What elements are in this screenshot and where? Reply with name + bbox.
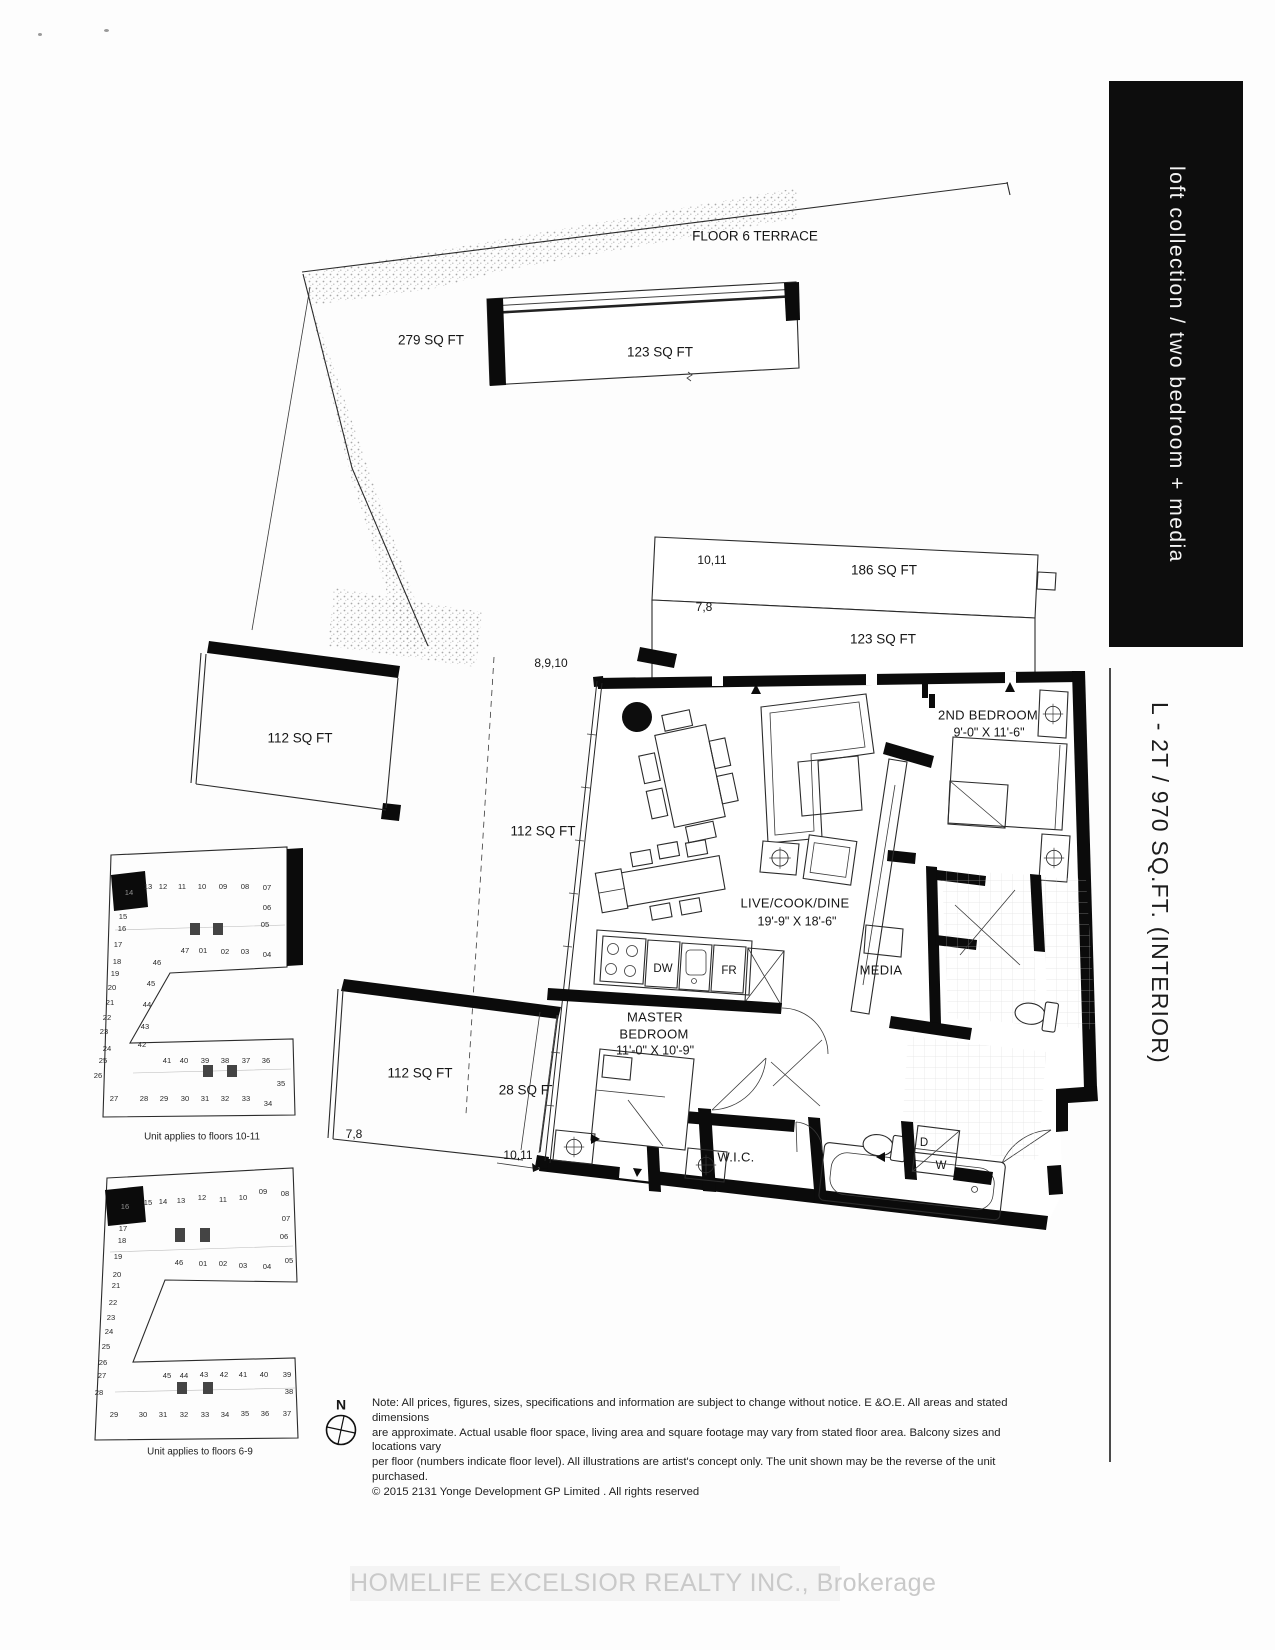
disclaimer-line3: per floor (numbers indicate floor level)… bbox=[372, 1455, 1044, 1485]
column bbox=[622, 702, 652, 732]
keyplan-unit-27: 27 bbox=[98, 1371, 106, 1380]
bed2 bbox=[948, 737, 1067, 830]
label-north: N bbox=[336, 1397, 346, 1413]
keyplan-unit-13: 13 bbox=[177, 1196, 185, 1205]
keyplan-unit-32: 32 bbox=[180, 1410, 188, 1419]
keyplan-unit-22: 22 bbox=[103, 1013, 111, 1022]
keyplan-unit-22: 22 bbox=[109, 1298, 117, 1307]
label-live-cook-dine: LIVE/COOK/DINE bbox=[741, 895, 850, 910]
keyplan-unit-05: 05 bbox=[261, 920, 269, 929]
keyplan-unit-29: 29 bbox=[110, 1410, 118, 1419]
keyplan-unit-43: 43 bbox=[200, 1370, 208, 1379]
keyplan-unit-16: 16 bbox=[121, 1202, 129, 1211]
keyplan-upper-units: 1413121110090807060547010203044645444342… bbox=[94, 882, 285, 1108]
keyplan-unit-02: 02 bbox=[221, 947, 229, 956]
keyplan-unit-04: 04 bbox=[263, 950, 271, 959]
disclaimer-line4: © 2015 2131 Yonge Development GP Limited… bbox=[372, 1485, 1044, 1500]
keyplan-unit-18: 18 bbox=[118, 1236, 126, 1245]
keyplan-unit-28: 28 bbox=[140, 1094, 148, 1103]
keyplan-unit-19: 19 bbox=[111, 969, 119, 978]
label-balcony-123-top: 123 SQ FT bbox=[627, 345, 693, 360]
label-dishwasher: DW bbox=[653, 963, 672, 975]
keyplan-unit-01: 01 bbox=[199, 946, 207, 955]
keyplan-unit-24: 24 bbox=[105, 1327, 113, 1336]
keyplan-unit-45: 45 bbox=[147, 979, 155, 988]
keyplan-unit-07: 07 bbox=[263, 883, 271, 892]
keyplan-unit-46: 46 bbox=[175, 1258, 183, 1267]
keyplan-unit-25: 25 bbox=[99, 1056, 107, 1065]
label-balcony-123: 123 SQ FT bbox=[850, 632, 916, 647]
keyplan-unit-15: 15 bbox=[144, 1198, 152, 1207]
keyplan-unit-41: 41 bbox=[163, 1056, 171, 1065]
keyplan-unit-31: 31 bbox=[159, 1410, 167, 1419]
keyplan-unit-38: 38 bbox=[285, 1387, 293, 1396]
keyplan-unit-36: 36 bbox=[261, 1409, 269, 1418]
keyplan-unit-39: 39 bbox=[283, 1370, 291, 1379]
keyplan-unit-40: 40 bbox=[260, 1370, 268, 1379]
keyplan-unit-30: 30 bbox=[181, 1094, 189, 1103]
keyplan-unit-08: 08 bbox=[241, 882, 249, 891]
keyplan-unit-14: 14 bbox=[159, 1197, 167, 1206]
keyplan-unit-21: 21 bbox=[106, 998, 114, 1007]
keyplan-floors-6-9: 1615141312111009080706054601020304171819… bbox=[95, 1168, 298, 1458]
keyplan-unit-44: 44 bbox=[180, 1371, 188, 1380]
keyplan-unit-37: 37 bbox=[283, 1409, 291, 1418]
keyplan-unit-04: 04 bbox=[263, 1262, 271, 1271]
keyplan-unit-15: 15 bbox=[119, 912, 127, 921]
keyplan-unit-36: 36 bbox=[262, 1056, 270, 1065]
label-strip-28: 28 SQ FT bbox=[499, 1083, 558, 1098]
label-media: MEDIA bbox=[860, 962, 903, 977]
keyplan-unit-05: 05 bbox=[285, 1256, 293, 1265]
keyplan-unit-11: 11 bbox=[178, 882, 186, 891]
keyplan-unit-25: 25 bbox=[102, 1342, 110, 1351]
keyplan-unit-39: 39 bbox=[201, 1056, 209, 1065]
brokerage-watermark: HOMELIFE EXCELSIOR REALTY INC., Brokerag… bbox=[350, 1566, 840, 1601]
keyplan-unit-17: 17 bbox=[114, 940, 122, 949]
keyplan-unit-31: 31 bbox=[201, 1094, 209, 1103]
label-floors-8-9-10: 8,9,10 bbox=[534, 656, 568, 670]
keyplan-unit-03: 03 bbox=[241, 947, 249, 956]
master-bed bbox=[591, 1049, 694, 1150]
keyplan-unit-46: 46 bbox=[153, 958, 161, 967]
label-terrace-279: 279 SQ FT bbox=[398, 333, 464, 348]
collection-banner-text: loft collection / two bedroom + media bbox=[1164, 166, 1188, 563]
label-terrace-112-lower: 112 SQ FT bbox=[387, 1066, 452, 1081]
keyplan-unit-38: 38 bbox=[221, 1056, 229, 1065]
keyplan-unit-41: 41 bbox=[239, 1370, 247, 1379]
keyplan-unit-43: 43 bbox=[141, 1022, 149, 1031]
keyplan-unit-06: 06 bbox=[280, 1232, 288, 1241]
keyplan-floors-10-11: 1413121110090807060547010203044645444342… bbox=[94, 847, 303, 1143]
north-compass: N bbox=[327, 1397, 356, 1445]
label-strip-112: 112 SQ FT bbox=[510, 824, 575, 839]
keyplan-unit-13: 13 bbox=[144, 882, 152, 891]
keyplan-unit-09: 09 bbox=[259, 1187, 267, 1196]
keyplan-unit-34: 34 bbox=[221, 1410, 229, 1419]
keyplan-unit-18: 18 bbox=[113, 957, 121, 966]
keyplan-unit-45: 45 bbox=[163, 1371, 171, 1380]
top-balcony: 123 SQ FT bbox=[487, 282, 800, 386]
keyplan-unit-47: 47 bbox=[181, 946, 189, 955]
keyplan-upper-caption: Unit applies to floors 10-11 bbox=[144, 1132, 260, 1143]
keyplan-unit-20: 20 bbox=[113, 1270, 121, 1279]
label-2nd-bedroom: 2ND BEDROOM bbox=[938, 707, 1038, 722]
keyplan-unit-44: 44 bbox=[143, 1000, 151, 1009]
unit-code-label: L - 2T / 970 SQ.FT. (INTERIOR) bbox=[1146, 702, 1173, 1064]
keyplan-unit-08: 08 bbox=[281, 1189, 289, 1198]
keyplan-unit-20: 20 bbox=[108, 983, 116, 992]
keyplan-unit-06: 06 bbox=[263, 903, 271, 912]
keyplan-unit-23: 23 bbox=[100, 1027, 108, 1036]
label-master-line1: MASTER bbox=[627, 1009, 683, 1024]
keyplan-unit-35: 35 bbox=[277, 1079, 285, 1088]
keyplan-unit-16: 16 bbox=[118, 924, 126, 933]
keyplan-unit-40: 40 bbox=[180, 1056, 188, 1065]
label-master-dims: 11'-0" X 10'-9" bbox=[616, 1043, 694, 1057]
page-edge-line bbox=[1109, 668, 1111, 1462]
keyplan-unit-42: 42 bbox=[220, 1370, 228, 1379]
keyplan-unit-42: 42 bbox=[138, 1040, 146, 1049]
keyplan-unit-28: 28 bbox=[95, 1388, 103, 1397]
mid-balconies: 10,11 186 SQ FT 7,8 123 SQ FT bbox=[637, 537, 1056, 681]
keyplan-unit-34: 34 bbox=[264, 1099, 272, 1108]
keyplan-unit-19: 19 bbox=[114, 1252, 122, 1261]
keyplan-lower-caption: Unit applies to floors 6-9 bbox=[147, 1447, 253, 1458]
disclaimer-note: Note: All prices, figures, sizes, specif… bbox=[372, 1396, 1044, 1500]
keyplan-unit-09: 09 bbox=[219, 882, 227, 891]
terrace-112-upper: 112 SQ FT bbox=[191, 641, 401, 821]
keyplan-unit-10: 10 bbox=[239, 1193, 247, 1202]
keyplan-unit-26: 26 bbox=[94, 1071, 102, 1080]
disclaimer-line2: are approximate. Actual usable floor spa… bbox=[372, 1426, 1044, 1456]
keyplan-unit-30: 30 bbox=[139, 1410, 147, 1419]
label-dryer: D bbox=[920, 1137, 928, 1149]
keyplan-unit-23: 23 bbox=[107, 1313, 115, 1322]
keyplan-unit-01: 01 bbox=[199, 1259, 207, 1268]
armchair bbox=[803, 835, 857, 885]
label-balcony-186: 186 SQ FT bbox=[851, 563, 917, 578]
keyplan-unit-17: 17 bbox=[119, 1224, 127, 1233]
keyplan-unit-14: 14 bbox=[125, 888, 133, 897]
keyplan-unit-02: 02 bbox=[219, 1259, 227, 1268]
label-floor6-terrace: FLOOR 6 TERRACE bbox=[692, 229, 818, 244]
keyplan-unit-32: 32 bbox=[221, 1094, 229, 1103]
label-live-dims: 19'-9" X 18'-6" bbox=[758, 914, 837, 928]
keyplan-unit-33: 33 bbox=[242, 1094, 250, 1103]
keyplan-unit-35: 35 bbox=[241, 1409, 249, 1418]
keyplan-unit-21: 21 bbox=[112, 1281, 120, 1290]
keyplan-unit-27: 27 bbox=[110, 1094, 118, 1103]
keyplan-unit-12: 12 bbox=[159, 882, 167, 891]
keyplan-unit-11: 11 bbox=[219, 1195, 227, 1204]
label-floors-10-11-lower: 10,11 bbox=[503, 1148, 532, 1162]
keyplan-unit-29: 29 bbox=[160, 1094, 168, 1103]
label-master-line2: BEDROOM bbox=[619, 1026, 688, 1041]
keyplan-unit-26: 26 bbox=[99, 1358, 107, 1367]
label-floors-10-11: 10,11 bbox=[697, 553, 726, 567]
label-washer: W bbox=[936, 1160, 947, 1172]
label-terrace-112-upper: 112 SQ FT bbox=[267, 731, 332, 746]
keyplan-unit-37: 37 bbox=[242, 1056, 250, 1065]
label-floors-7-8: 7,8 bbox=[696, 600, 713, 614]
keyplan-unit-03: 03 bbox=[239, 1261, 247, 1270]
keyplan-unit-10: 10 bbox=[198, 882, 206, 891]
label-fridge: FR bbox=[721, 965, 736, 977]
keyplan-unit-12: 12 bbox=[198, 1193, 206, 1202]
floorplan-page: FLOOR 6 TERRACE 279 SQ FT 123 SQ FT 10,1… bbox=[0, 0, 1275, 1650]
disclaimer-line1: Note: All prices, figures, sizes, specif… bbox=[372, 1396, 1044, 1426]
keyplan-unit-24: 24 bbox=[103, 1044, 111, 1053]
keyplan-unit-07: 07 bbox=[282, 1214, 290, 1223]
collection-banner: loft collection / two bedroom + media bbox=[1109, 81, 1243, 647]
keyplan-unit-33: 33 bbox=[201, 1410, 209, 1419]
label-2nd-bedroom-dims: 9'-0" X 11'-6" bbox=[953, 725, 1024, 739]
terrace-112-lower: 112 SQ FT 7,8 28 SQ FT 10,11 bbox=[328, 979, 561, 1172]
label-floors-7-8-lower: 7,8 bbox=[346, 1127, 363, 1141]
